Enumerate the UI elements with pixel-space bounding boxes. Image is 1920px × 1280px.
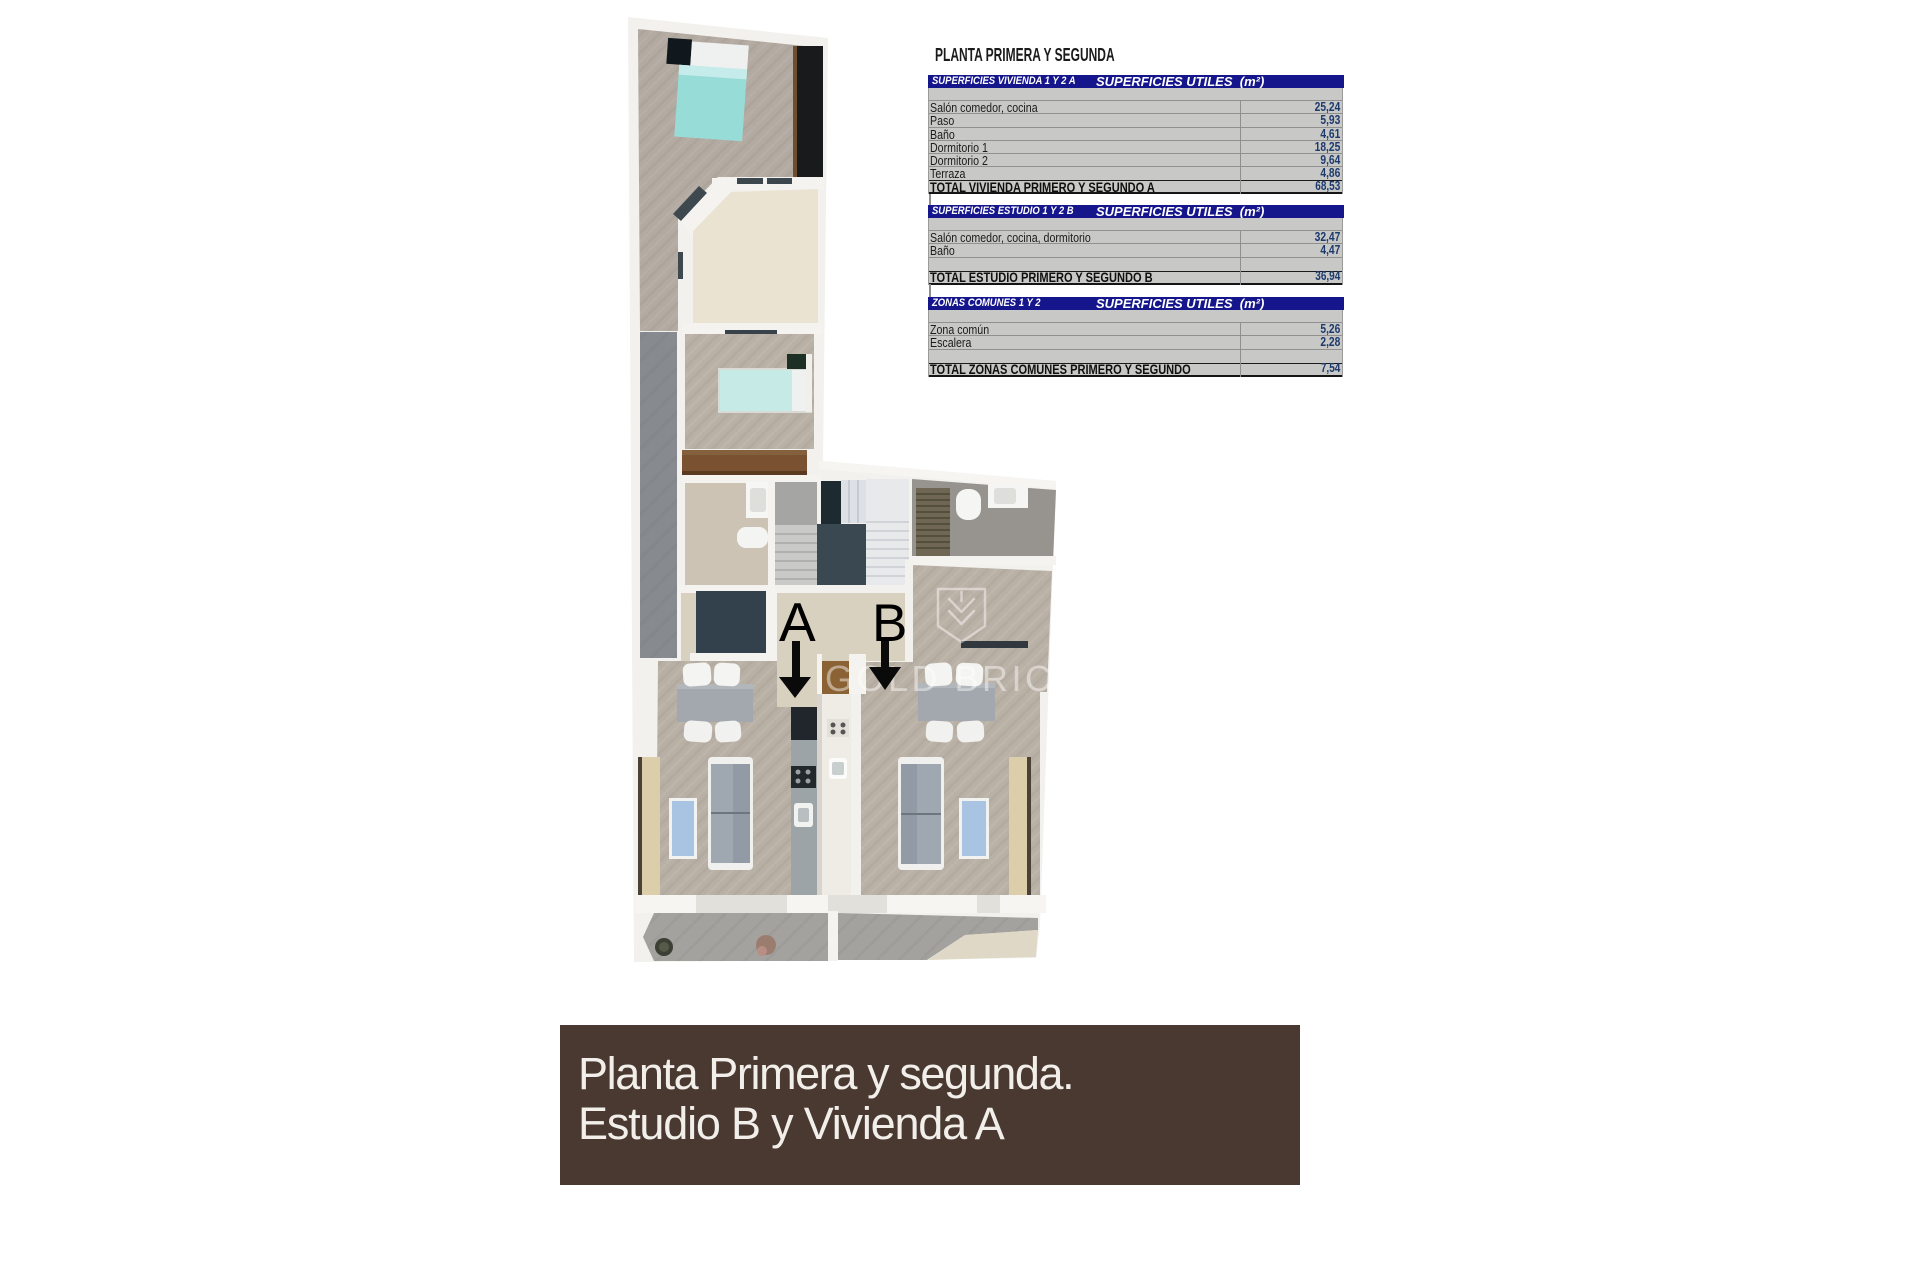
svg-text:GOLD BRICK: GOLD BRICK bbox=[825, 658, 1082, 699]
svg-text:B: B bbox=[872, 594, 907, 653]
